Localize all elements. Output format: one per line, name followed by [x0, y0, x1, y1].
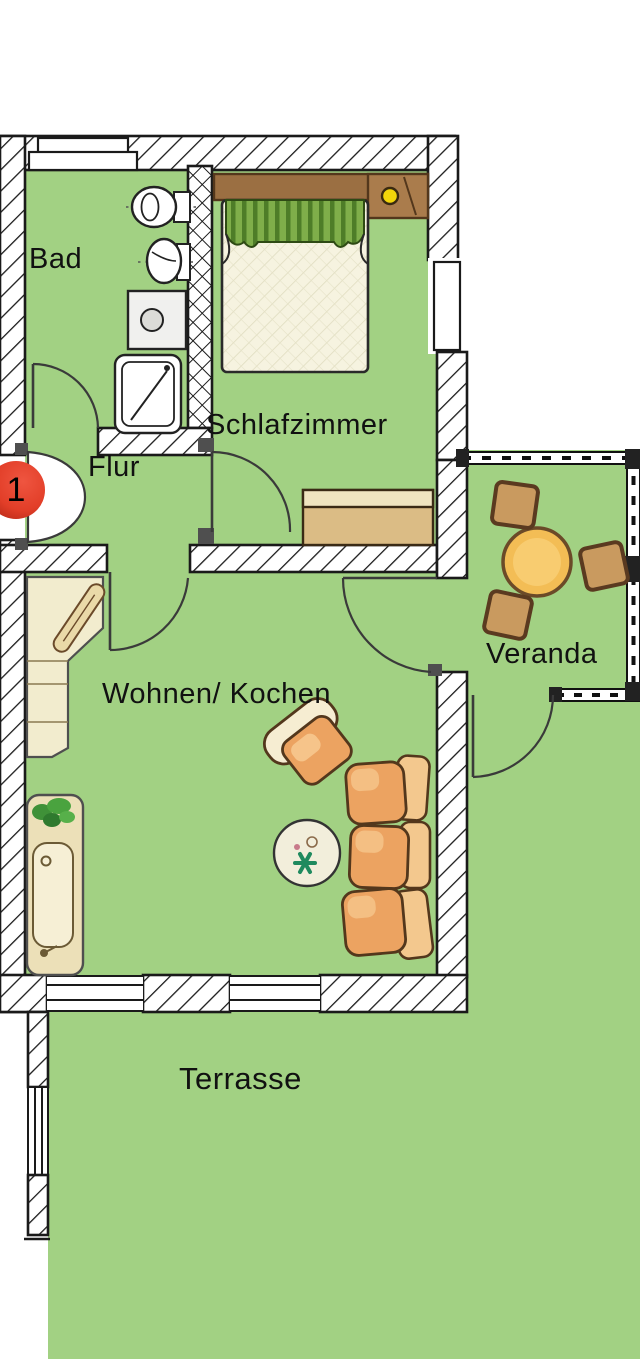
coffee-table — [274, 820, 340, 886]
window-terrasse-left — [28, 1087, 48, 1175]
stool — [483, 590, 533, 640]
washing-machine-icon — [128, 291, 186, 349]
room-label-wohnen-kochen: Wohnen/ Kochen — [102, 678, 331, 711]
stool — [491, 481, 538, 528]
wall-bottom-1 — [0, 975, 47, 1012]
shower-icon — [115, 355, 181, 433]
room-label-bad: Bad — [29, 243, 82, 276]
wall-left-lower — [0, 540, 25, 1012]
wall-left-upper — [0, 136, 25, 455]
sofa — [341, 755, 434, 960]
window-top — [29, 138, 137, 170]
room-label-veranda: Veranda — [486, 638, 598, 671]
wall-terrasse-left-2 — [28, 1175, 48, 1235]
terrace-door-window — [230, 976, 320, 1011]
wall-right-mid — [437, 352, 467, 460]
wall-schlafzimmer-bottom — [190, 545, 437, 572]
toilet-icon — [126, 187, 197, 227]
room-label-terrasse: Terrasse — [179, 1061, 302, 1097]
room-label-flur: Flur — [88, 451, 140, 484]
sink-basin — [33, 843, 73, 947]
wall-terrasse-left-1 — [28, 1012, 48, 1087]
wall-right-upper — [428, 136, 458, 260]
veranda-post — [625, 682, 640, 701]
wall-right-veranda-upper — [437, 460, 467, 578]
wall-right-lower — [437, 672, 467, 977]
floor-plan: Bad Flur Schlafzimmer Wohnen/ Kochen Ver… — [0, 0, 640, 1359]
veranda-post — [625, 449, 640, 469]
window-schlafzimmer — [428, 258, 467, 354]
curtain — [226, 200, 364, 247]
bedside-lamp-icon — [382, 188, 398, 204]
dresser — [303, 490, 433, 545]
window-bottom-left — [47, 976, 143, 1011]
room-label-schlafzimmer: Schlafzimmer — [206, 409, 388, 442]
veranda-post — [456, 449, 469, 467]
wall-bottom-3 — [320, 975, 467, 1012]
wall-bottom-2 — [143, 975, 230, 1012]
stool — [579, 541, 629, 591]
kitchen-sink-unit — [27, 795, 83, 975]
veranda-post — [549, 687, 562, 702]
wall-bad-schlafzimmer — [188, 166, 212, 428]
bed — [222, 200, 368, 372]
